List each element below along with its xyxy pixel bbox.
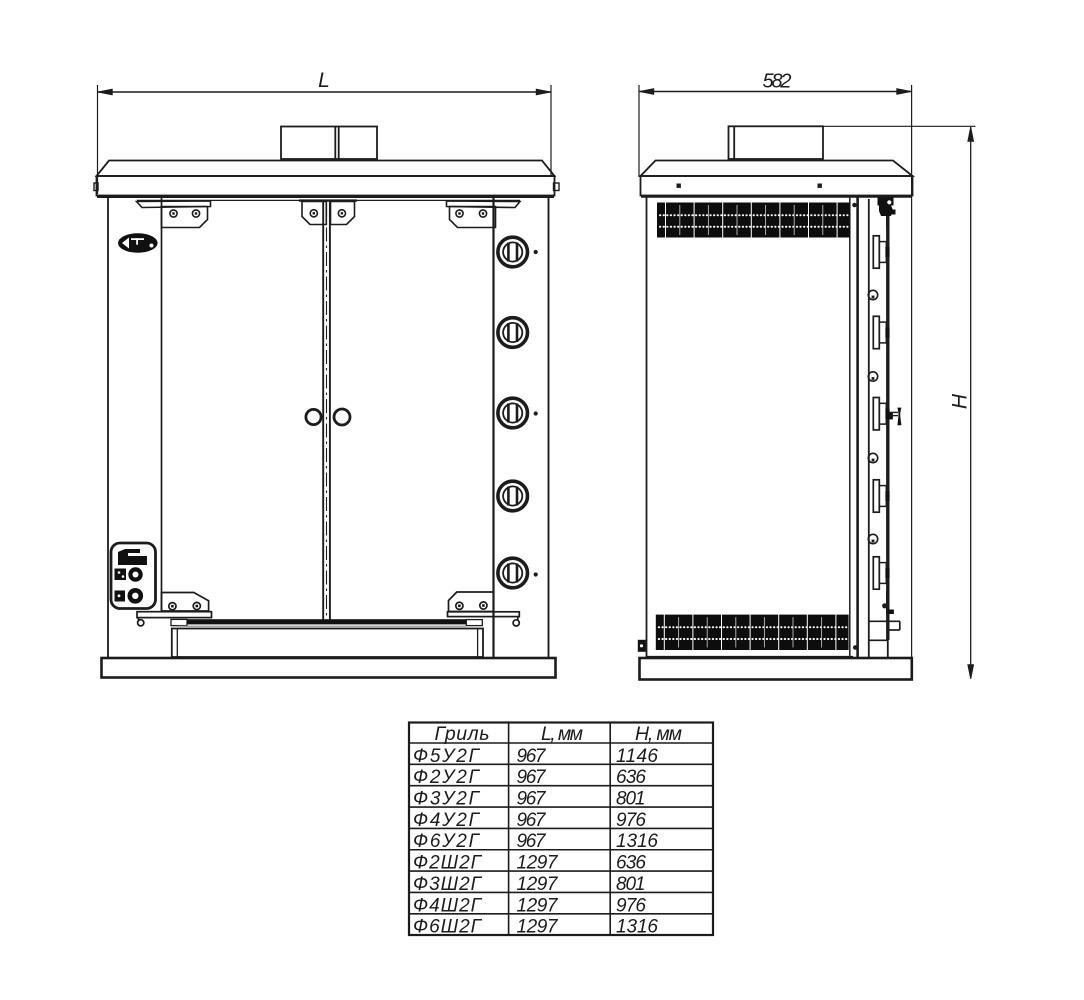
svg-text:1146: 1146: [616, 746, 658, 767]
svg-text:636: 636: [616, 853, 646, 874]
svg-text:H: H: [949, 393, 972, 409]
svg-text:967: 967: [517, 810, 547, 831]
svg-text:801: 801: [616, 789, 646, 810]
svg-text:Гриль: Гриль: [435, 723, 490, 745]
svg-text:Ф6Ш2Г: Ф6Ш2Г: [413, 917, 483, 938]
svg-text:L: L: [318, 69, 330, 92]
svg-text:967: 967: [517, 789, 547, 810]
svg-text:Ф5У2Г: Ф5У2Г: [413, 746, 481, 767]
svg-text:L, мм: L, мм: [541, 723, 583, 745]
svg-text:1297: 1297: [517, 917, 559, 938]
svg-text:Ф2Ш2Г: Ф2Ш2Г: [413, 853, 483, 874]
svg-text:Ф6У2Г: Ф6У2Г: [413, 831, 481, 852]
svg-text:1316: 1316: [616, 917, 658, 938]
svg-text:Ф3У2Г: Ф3У2Г: [413, 789, 481, 810]
svg-text:Ф2У2Г: Ф2У2Г: [413, 767, 481, 788]
svg-text:1297: 1297: [517, 895, 559, 916]
svg-text:Ф4У2Г: Ф4У2Г: [413, 810, 481, 831]
svg-text:967: 967: [517, 831, 547, 852]
svg-text:976: 976: [616, 810, 646, 831]
svg-text:Ф3Ш2Г: Ф3Ш2Г: [413, 874, 483, 895]
svg-text:Ф4Ш2Г: Ф4Ш2Г: [413, 895, 483, 916]
svg-text:976: 976: [616, 895, 646, 916]
svg-text:967: 967: [517, 746, 547, 767]
svg-text:Н, мм: Н, мм: [635, 723, 682, 745]
svg-text:1316: 1316: [616, 831, 658, 852]
svg-text:582: 582: [763, 71, 792, 93]
svg-text:636: 636: [616, 767, 646, 788]
svg-text:967: 967: [517, 767, 547, 788]
svg-text:801: 801: [616, 874, 646, 895]
svg-text:1297: 1297: [517, 853, 559, 874]
svg-text:1297: 1297: [517, 874, 559, 895]
